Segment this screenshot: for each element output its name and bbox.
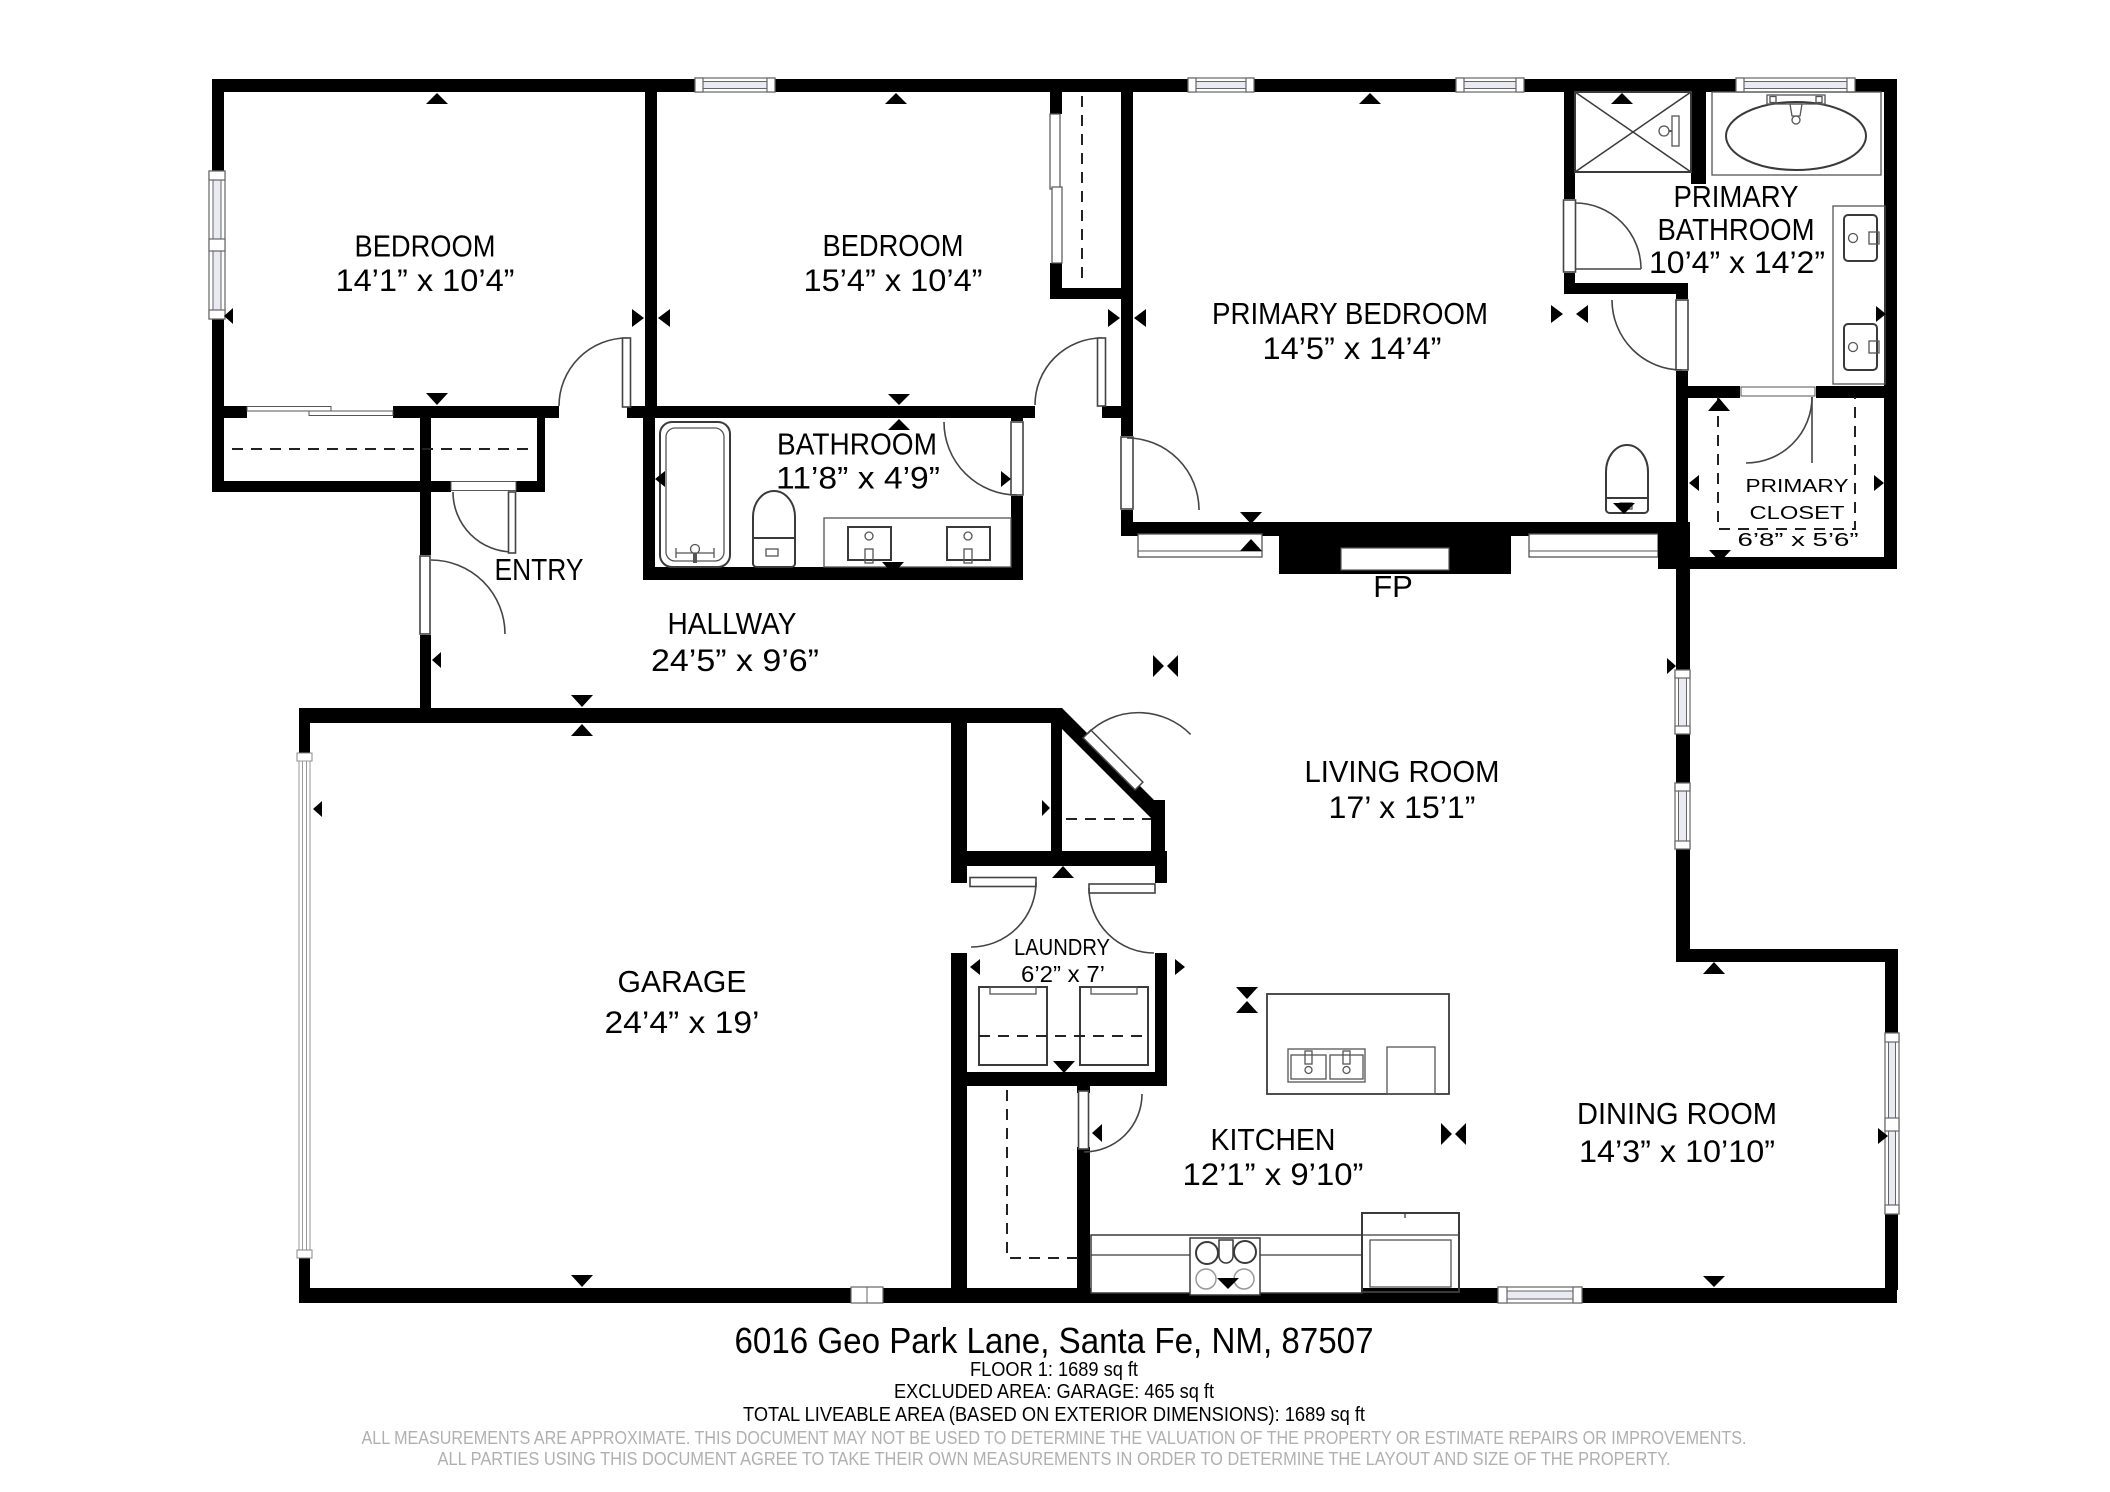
svg-text:DINING ROOM: DINING ROOM <box>1577 1096 1777 1131</box>
svg-text:6016 Geo Park Lane, Santa Fe,: 6016 Geo Park Lane, Santa Fe, NM, 87507 <box>735 1320 1374 1361</box>
svg-text:PRIMARY: PRIMARY <box>1746 476 1849 496</box>
svg-text:LAUNDRY: LAUNDRY <box>1014 934 1110 960</box>
svg-text:24’5” x 9’6”: 24’5” x 9’6” <box>651 642 819 678</box>
svg-text:TOTAL LIVEABLE AREA (BASED ON: TOTAL LIVEABLE AREA (BASED ON EXTERIOR D… <box>743 1403 1365 1426</box>
svg-text:14’1” x 10’4”: 14’1” x 10’4” <box>336 262 515 298</box>
svg-text:11’8” x 4’9”: 11’8” x 4’9” <box>776 460 940 496</box>
svg-text:EXCLUDED AREA: GARAGE: 465 sq: EXCLUDED AREA: GARAGE: 465 sq ft <box>894 1380 1214 1403</box>
svg-text:PRIMARY: PRIMARY <box>1674 179 1799 214</box>
svg-text:GARAGE: GARAGE <box>618 964 747 999</box>
svg-text:14’5” x 14’4”: 14’5” x 14’4” <box>1263 330 1442 366</box>
svg-text:ALL MEASUREMENTS ARE APPROXIMA: ALL MEASUREMENTS ARE APPROXIMATE. THIS D… <box>362 1428 1747 1448</box>
svg-text:BEDROOM: BEDROOM <box>823 228 964 263</box>
svg-text:10’4” x 14’2”: 10’4” x 14’2” <box>1649 244 1825 280</box>
svg-text:LIVING ROOM: LIVING ROOM <box>1305 754 1500 789</box>
svg-text:17’ x 15’1”: 17’ x 15’1” <box>1329 789 1476 825</box>
svg-text:15’4” x 10’4”: 15’4” x 10’4” <box>804 262 983 298</box>
svg-text:ENTRY: ENTRY <box>495 552 584 587</box>
svg-text:FLOOR 1: 1689 sq ft: FLOOR 1: 1689 sq ft <box>970 1358 1138 1381</box>
svg-text:6’2” x 7’: 6’2” x 7’ <box>1021 961 1105 987</box>
svg-text:6’8” x 5’6”: 6’8” x 5’6” <box>1738 530 1859 550</box>
svg-text:14’3” x 10’10”: 14’3” x 10’10” <box>1579 1133 1775 1169</box>
svg-text:KITCHEN: KITCHEN <box>1211 1122 1336 1157</box>
svg-text:BATHROOM: BATHROOM <box>777 427 937 462</box>
svg-text:FP: FP <box>1373 569 1413 604</box>
svg-text:CLOSET: CLOSET <box>1750 503 1845 523</box>
svg-text:ALL PARTIES USING THIS DOCUMEN: ALL PARTIES USING THIS DOCUMENT AGREE TO… <box>438 1449 1671 1469</box>
svg-text:PRIMARY BEDROOM: PRIMARY BEDROOM <box>1212 296 1488 331</box>
svg-text:12’1” x 9’10”: 12’1” x 9’10” <box>1183 1156 1364 1192</box>
svg-text:24’4” x 19’: 24’4” x 19’ <box>605 1004 760 1040</box>
svg-text:BATHROOM: BATHROOM <box>1658 212 1815 247</box>
svg-text:HALLWAY: HALLWAY <box>668 606 797 641</box>
svg-text:BEDROOM: BEDROOM <box>355 229 496 264</box>
